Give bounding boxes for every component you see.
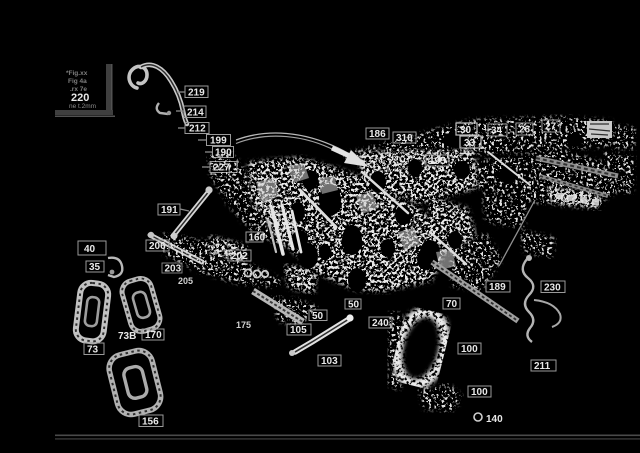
- svg-text:105: 105: [290, 325, 307, 336]
- svg-text:230: 230: [544, 283, 561, 294]
- svg-text:73B: 73B: [118, 331, 136, 342]
- svg-text:219: 219: [188, 88, 205, 99]
- svg-text:175: 175: [236, 320, 251, 330]
- svg-text:195: 195: [429, 156, 446, 167]
- svg-text:203: 203: [165, 264, 182, 275]
- svg-text:310: 310: [396, 133, 413, 144]
- svg-text:73: 73: [87, 345, 99, 356]
- svg-text:ne t.2mm: ne t.2mm: [69, 103, 96, 110]
- svg-text:*Fig.xx: *Fig.xx: [66, 70, 88, 77]
- svg-text:202: 202: [231, 251, 248, 262]
- svg-text:205: 205: [178, 276, 193, 286]
- svg-text:160: 160: [249, 233, 266, 244]
- svg-text:35: 35: [89, 262, 101, 273]
- svg-text:156: 156: [142, 417, 159, 428]
- svg-text:211: 211: [534, 361, 551, 372]
- svg-text:191: 191: [161, 205, 178, 216]
- svg-text:100: 100: [461, 344, 478, 355]
- svg-text:186: 186: [369, 129, 386, 140]
- svg-text:30: 30: [460, 125, 472, 136]
- svg-text:50: 50: [312, 311, 324, 322]
- svg-text:240: 240: [372, 318, 389, 329]
- svg-text:170: 170: [145, 330, 162, 341]
- svg-text:33: 33: [464, 138, 476, 149]
- svg-text:Fig 4a: Fig 4a: [68, 78, 87, 85]
- svg-text:34: 34: [491, 126, 503, 137]
- svg-text:26: 26: [519, 125, 531, 136]
- svg-text:189: 189: [489, 282, 506, 293]
- svg-text:212: 212: [189, 124, 206, 135]
- svg-text:100: 100: [471, 387, 488, 398]
- svg-text:40: 40: [84, 244, 96, 255]
- svg-text:27: 27: [545, 122, 557, 133]
- svg-text:199: 199: [210, 136, 227, 147]
- svg-text:50: 50: [348, 300, 360, 311]
- svg-text:70: 70: [446, 299, 458, 310]
- svg-text:140: 140: [486, 414, 503, 425]
- svg-text:214: 214: [187, 108, 204, 119]
- svg-text:103: 103: [321, 356, 338, 367]
